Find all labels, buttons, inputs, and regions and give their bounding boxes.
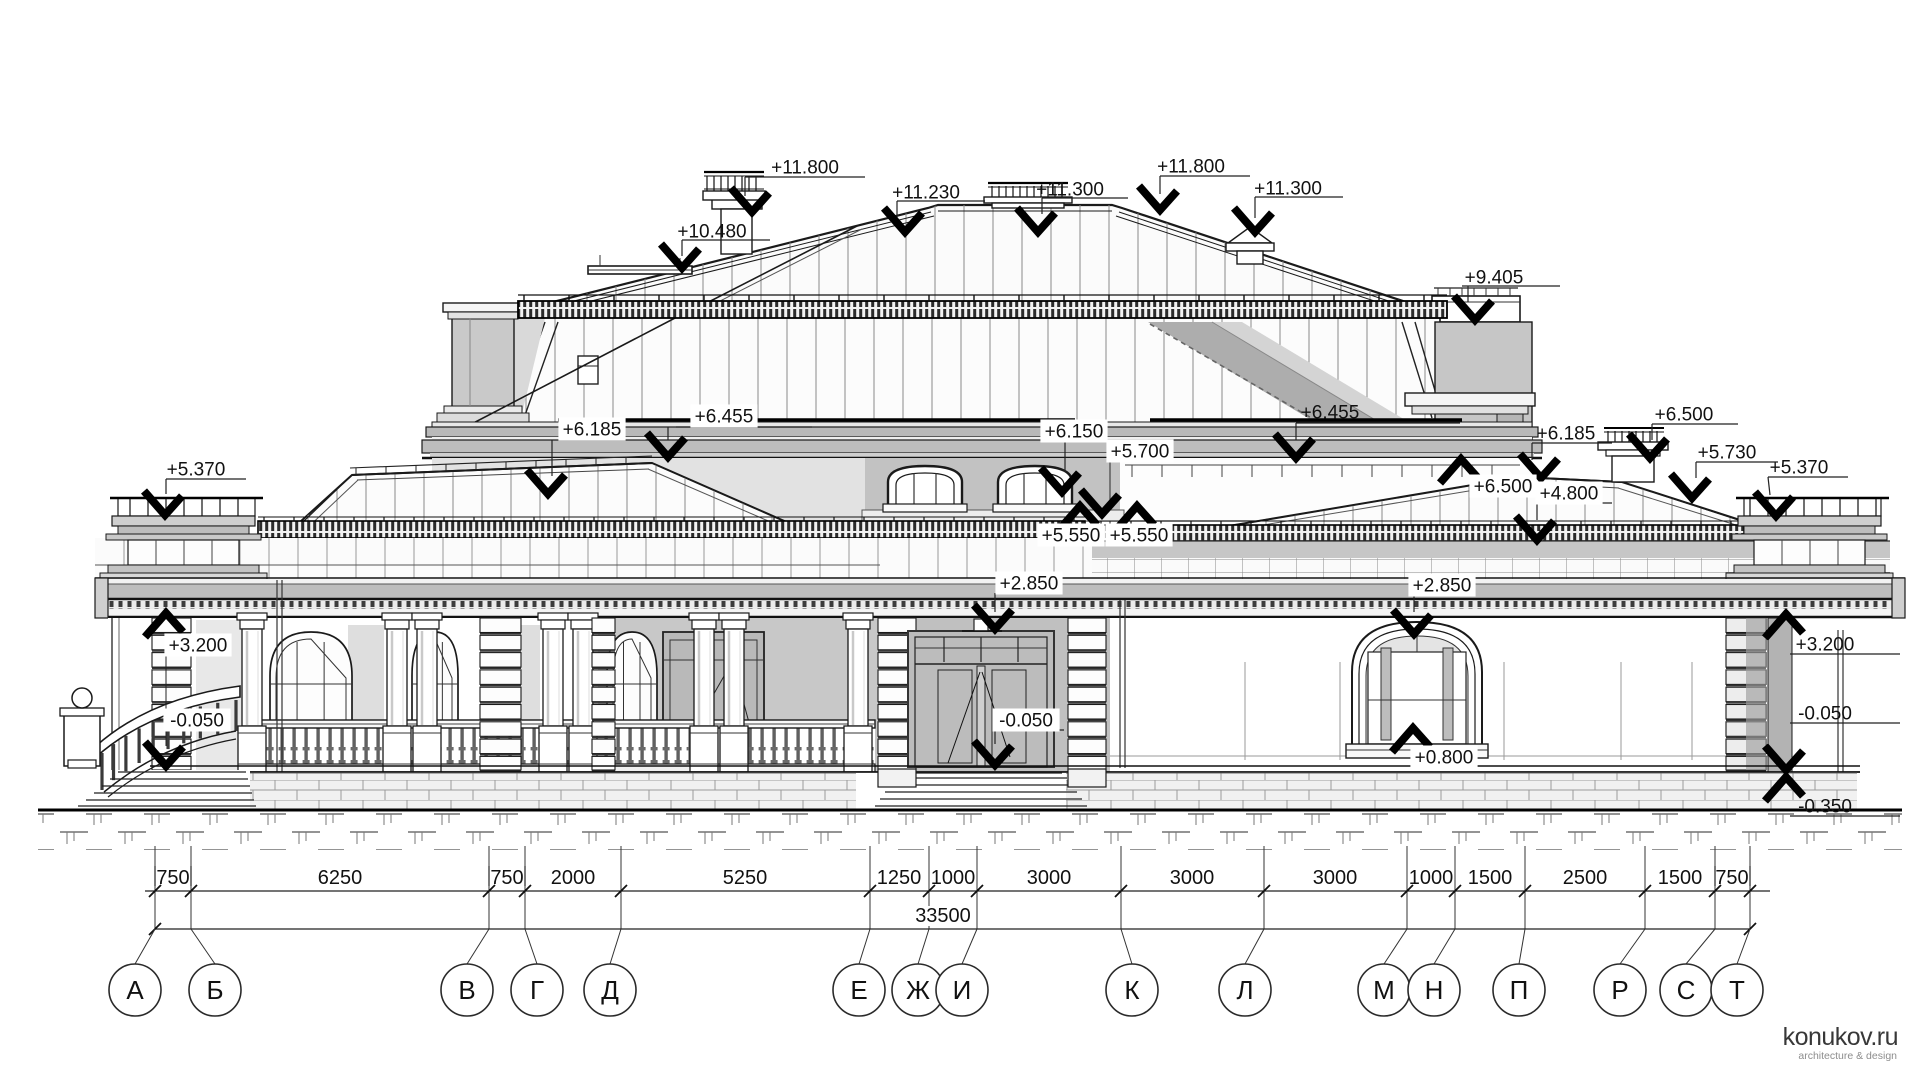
svg-text:Г: Г <box>530 975 544 1005</box>
svg-text:+5.550: +5.550 <box>1042 526 1101 547</box>
svg-text:В: В <box>458 975 475 1005</box>
svg-text:Е: Е <box>850 975 867 1005</box>
svg-text:А: А <box>126 975 144 1005</box>
svg-text:+6.455: +6.455 <box>1301 403 1360 424</box>
svg-text:+6.500: +6.500 <box>1474 477 1533 498</box>
svg-text:3000: 3000 <box>1313 867 1358 889</box>
svg-text:750: 750 <box>490 867 523 889</box>
svg-text:И: И <box>953 975 972 1005</box>
svg-text:+4.800: +4.800 <box>1540 484 1599 505</box>
svg-text:33500: 33500 <box>915 905 971 927</box>
svg-text:+6.185: +6.185 <box>1537 424 1596 445</box>
svg-text:1000: 1000 <box>931 867 976 889</box>
svg-text:750: 750 <box>156 867 189 889</box>
svg-text:-0.050: -0.050 <box>1798 704 1852 725</box>
svg-text:konukov.ru: konukov.ru <box>1783 1023 1898 1051</box>
svg-text:750: 750 <box>1715 867 1748 889</box>
svg-text:М: М <box>1373 975 1395 1005</box>
svg-text:+11.300: +11.300 <box>1036 180 1104 201</box>
svg-text:Б: Б <box>206 975 223 1005</box>
svg-text:5250: 5250 <box>723 867 768 889</box>
svg-text:1500: 1500 <box>1658 867 1703 889</box>
svg-text:2500: 2500 <box>1563 867 1608 889</box>
svg-text:Л: Л <box>1236 975 1253 1005</box>
svg-text:+11.800: +11.800 <box>771 158 839 179</box>
svg-text:П: П <box>1510 975 1529 1005</box>
svg-text:+11.230: +11.230 <box>892 183 960 204</box>
svg-text:+2.850: +2.850 <box>1413 576 1472 597</box>
svg-text:С: С <box>1677 975 1696 1005</box>
svg-text:Ж: Ж <box>906 975 930 1005</box>
svg-text:+6.455: +6.455 <box>695 407 754 428</box>
svg-text:architecture & design: architecture & design <box>1798 1050 1897 1062</box>
svg-text:+0.800: +0.800 <box>1415 748 1474 769</box>
svg-text:+6.150: +6.150 <box>1045 422 1104 443</box>
svg-text:6250: 6250 <box>318 867 363 889</box>
svg-text:+11.800: +11.800 <box>1157 157 1225 178</box>
svg-text:Н: Н <box>1425 975 1444 1005</box>
svg-text:+6.185: +6.185 <box>563 420 622 441</box>
svg-text:+9.405: +9.405 <box>1465 268 1524 289</box>
svg-text:+3.200: +3.200 <box>1796 635 1855 656</box>
svg-text:Д: Д <box>601 975 619 1005</box>
svg-text:-0.050: -0.050 <box>999 711 1053 732</box>
svg-text:+5.370: +5.370 <box>1770 458 1829 479</box>
svg-text:+5.550: +5.550 <box>1110 526 1169 547</box>
svg-text:Р: Р <box>1611 975 1628 1005</box>
svg-text:+5.700: +5.700 <box>1111 442 1170 463</box>
svg-text:-0.050: -0.050 <box>170 711 224 732</box>
svg-text:3000: 3000 <box>1170 867 1215 889</box>
svg-text:+2.850: +2.850 <box>1000 574 1059 595</box>
svg-text:+5.370: +5.370 <box>167 460 226 481</box>
svg-text:2000: 2000 <box>551 867 596 889</box>
svg-text:+10.480: +10.480 <box>677 222 746 243</box>
svg-text:1000: 1000 <box>1409 867 1454 889</box>
svg-text:-0.350: -0.350 <box>1798 797 1852 818</box>
svg-text:Т: Т <box>1729 975 1745 1005</box>
svg-text:+11.300: +11.300 <box>1254 179 1322 200</box>
svg-text:1250: 1250 <box>877 867 922 889</box>
svg-text:1500: 1500 <box>1468 867 1513 889</box>
svg-text:3000: 3000 <box>1027 867 1072 889</box>
svg-text:+6.500: +6.500 <box>1655 405 1714 426</box>
svg-text:+5.730: +5.730 <box>1698 443 1757 464</box>
svg-text:+3.200: +3.200 <box>169 636 228 657</box>
svg-text:К: К <box>1124 975 1139 1005</box>
